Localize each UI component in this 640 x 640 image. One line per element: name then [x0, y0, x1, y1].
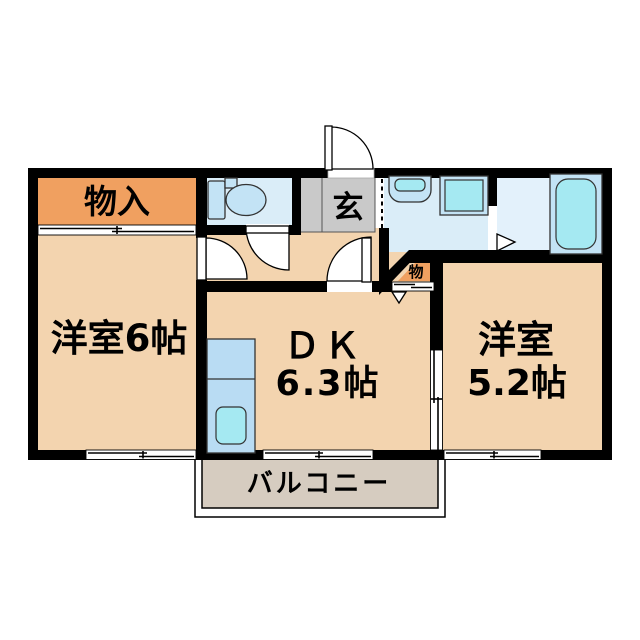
dk-label-line2: 6.3帖: [275, 364, 380, 404]
window-western-room-left: [86, 450, 196, 460]
western-room-right-label-line2: 5.2帖: [467, 363, 567, 404]
wall-toilet-bottom-left: [196, 225, 246, 235]
wall-dk-top-right: [372, 281, 392, 292]
window1-band: [86, 450, 196, 460]
window3-band: [444, 450, 541, 460]
dk-label-line1: ＤＫ: [284, 326, 364, 367]
toilet-door-leaf: [246, 226, 289, 233]
entrance-door-swing: [331, 127, 373, 169]
bathtub-fixture: [550, 174, 602, 254]
bathroom-doorway-gap: [488, 206, 497, 250]
small-closet-band: [392, 282, 434, 291]
western-room-right-label-line1: 洋室: [478, 318, 554, 362]
wall-left: [28, 168, 38, 460]
window-western-room-right: [444, 450, 541, 460]
kitchen-sink: [216, 407, 246, 444]
storage-sliding-door: [38, 225, 196, 235]
dk-room-sliding-band: [431, 350, 443, 450]
washbasin-sink: [395, 179, 425, 191]
storage-label: 物入: [84, 182, 150, 221]
wall-top-left: [28, 168, 328, 178]
wall-right: [602, 168, 612, 460]
floor-plan-drawing: 物入 玄 洋室6帖 ＤＫ 6.3帖 洋室 5.2帖 物 バルコニー: [0, 0, 640, 640]
balcony-label: バルコニー: [247, 469, 391, 499]
window2-band: [263, 450, 373, 460]
wall-dk-room-divider: [430, 250, 443, 350]
entrance-door: [325, 126, 374, 178]
small-closet-label: 物: [408, 263, 423, 281]
entrance-door-leaf: [325, 126, 332, 170]
wall-washroom-bathroom-divider: [488, 168, 497, 206]
bathtub-inner: [556, 179, 596, 249]
kitchen-counter: [207, 339, 255, 453]
wall-dk-top-left: [196, 281, 327, 292]
entrance-label: 玄: [333, 190, 364, 226]
wall-divider-left-lower: [196, 280, 207, 460]
washbasin-fixture: [389, 176, 431, 202]
toilet-bowl: [226, 185, 266, 216]
window-dk-balcony: [263, 450, 373, 460]
washing-machine-pan: [440, 176, 488, 215]
wall-toilet-entrance-divider: [292, 168, 301, 232]
dk-room-sliding-door: [431, 350, 443, 450]
toilet-tank: [208, 181, 225, 219]
dk-door-leaf: [362, 238, 371, 282]
entrance-step-floor: [298, 176, 322, 232]
washer-pan-inner: [445, 180, 483, 211]
western-room-left-door-leaf: [197, 237, 206, 280]
floor-plan-page: 物入 玄 洋室6帖 ＤＫ 6.3帖 洋室 5.2帖 物 バルコニー: [0, 0, 640, 640]
western-room-left-label: 洋室6帖: [51, 317, 188, 360]
